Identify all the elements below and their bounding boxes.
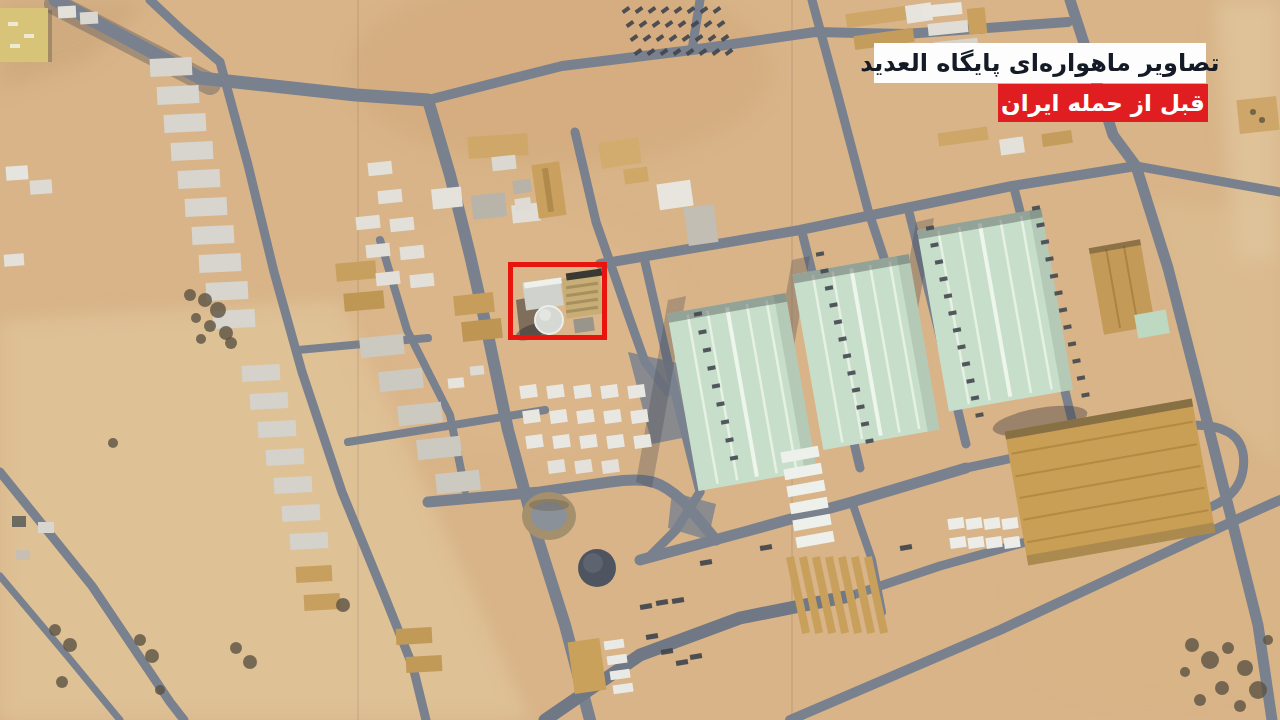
highlight-box — [508, 262, 607, 340]
subhead-banner: قبل از حمله ایران — [998, 84, 1208, 122]
subhead-text: قبل از حمله ایران — [1001, 90, 1205, 116]
yellow-building — [0, 8, 52, 62]
headline-text: تصاویر ماهواره‌ای پایگاه العدید — [860, 49, 1219, 77]
headline-banner: تصاویر ماهواره‌ای پایگاه العدید — [874, 43, 1206, 83]
round-pond — [522, 492, 576, 540]
dark-dome — [578, 549, 616, 587]
news-frame: تصاویر ماهواره‌ای پایگاه العدید قبل از ح… — [0, 0, 1280, 720]
